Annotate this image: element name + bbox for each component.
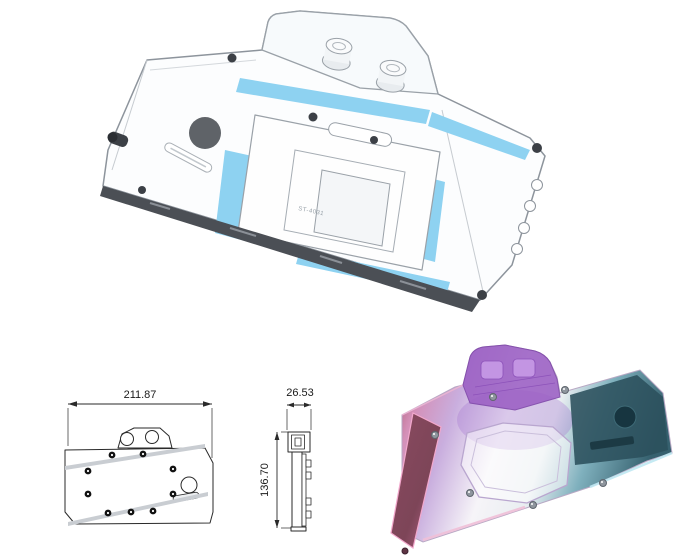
rgb-screw: [600, 480, 607, 487]
rgb-terminal: [463, 345, 560, 410]
arrowhead-left: [68, 401, 77, 407]
rgb-product-photo: [375, 335, 690, 560]
brand-badge: [189, 117, 221, 149]
rgb-screw: [530, 502, 537, 509]
side-view-outline: [288, 432, 311, 531]
port-hole: [121, 433, 134, 446]
main-product-photo: ST-4031: [60, 0, 580, 340]
product-composite-image: ST-4031: [0, 0, 700, 560]
rgb-screw: [432, 432, 439, 439]
mounting-screw: [370, 136, 378, 144]
dimension-drawing: 211.87: [40, 378, 340, 558]
arrowhead-left: [287, 403, 294, 408]
width-dimension-label: 211.87: [124, 389, 157, 401]
height-dimension-label: 136.70: [259, 463, 271, 497]
mounting-screw: [138, 186, 146, 194]
mounting-screw: [532, 143, 542, 153]
port-hole: [146, 431, 159, 444]
rgb-octagon-outer: [461, 423, 571, 503]
arrowhead-down: [275, 520, 280, 528]
mounting-screw: [228, 54, 237, 63]
arrowhead-right: [203, 401, 212, 407]
rgb-screw: [467, 490, 474, 497]
mounting-screw: [309, 113, 318, 122]
mounting-screw: [477, 290, 487, 300]
arrowhead-right: [304, 403, 311, 408]
rgb-screw: [562, 387, 569, 394]
logo-circle: [181, 477, 197, 493]
rgb-screw: [490, 394, 497, 401]
depth-dimension-label: 26.53: [286, 387, 314, 399]
gpu-coldplate: [314, 170, 390, 246]
rgb-brand-badge: [614, 406, 636, 428]
rgb-screw: [402, 548, 408, 554]
arrowhead-up: [275, 432, 280, 440]
